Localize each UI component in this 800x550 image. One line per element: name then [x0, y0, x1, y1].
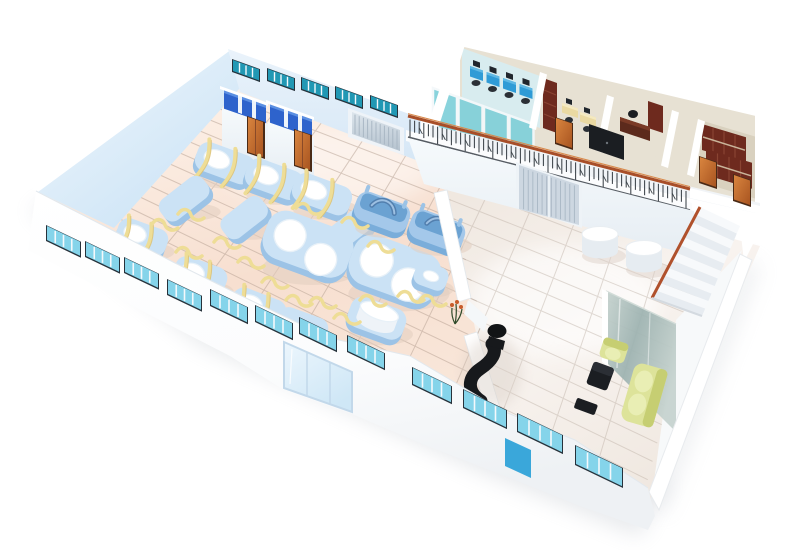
reception-chair [488, 324, 507, 338]
illustration-stage: 3D isometric factory and office floor pl… [0, 0, 800, 550]
floorplan-3d-rendering: 3D isometric factory and office floor pl… [0, 0, 800, 550]
